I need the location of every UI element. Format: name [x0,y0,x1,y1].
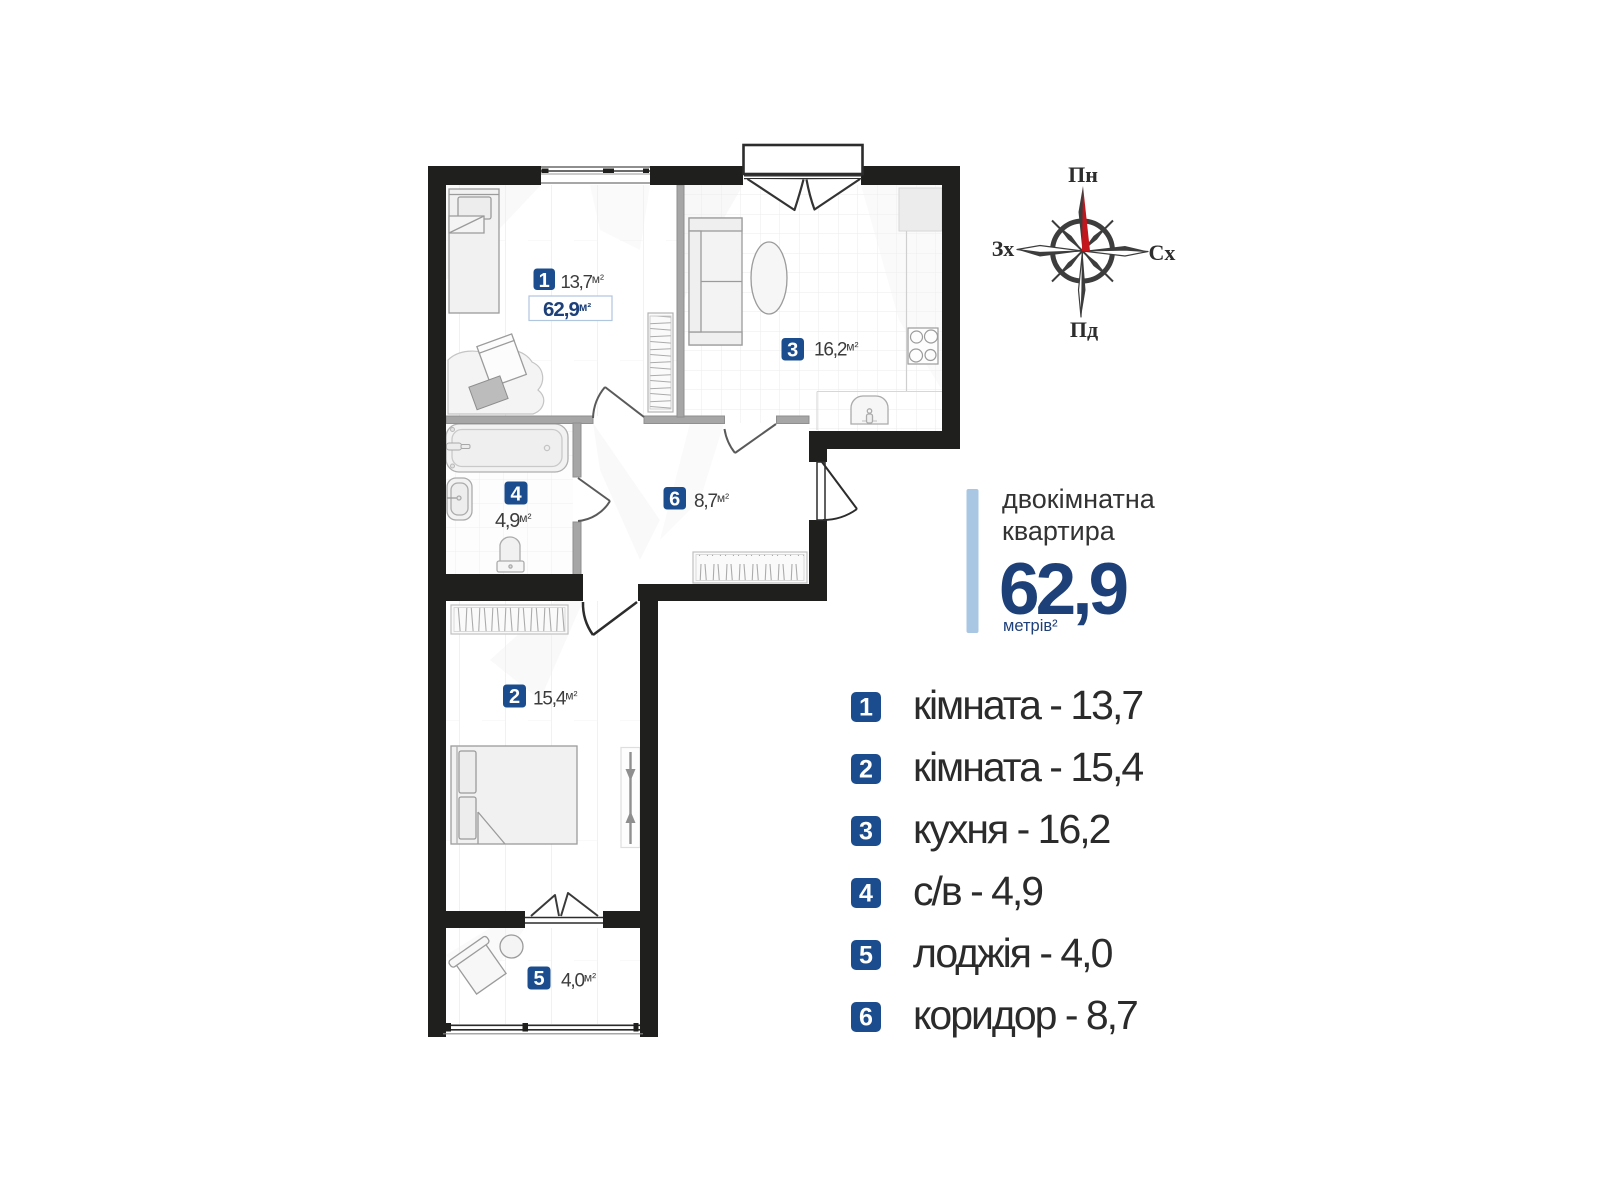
svg-text:5: 5 [533,968,544,990]
svg-text:6: 6 [859,1004,873,1032]
svg-text:4: 4 [510,484,522,506]
svg-text:Сх: Сх [1149,240,1176,265]
svg-text:Пд: Пд [1070,317,1098,342]
svg-text:3: 3 [787,340,798,362]
svg-text:1: 1 [859,694,873,722]
svg-text:кухня - 16,2: кухня - 16,2 [913,806,1110,852]
svg-text:6: 6 [669,489,680,511]
svg-text:коридор - 8,7: коридор - 8,7 [913,992,1137,1038]
svg-text:5: 5 [859,942,873,970]
svg-text:Зх: Зх [992,236,1015,261]
svg-text:3: 3 [859,818,873,846]
svg-text:квартира: квартира [1002,516,1116,546]
svg-text:2: 2 [859,756,873,784]
svg-text:метрів²: метрів² [1003,617,1058,635]
svg-text:4: 4 [859,880,873,908]
svg-text:лоджія - 4,0: лоджія - 4,0 [913,930,1113,976]
svg-text:кімната - 13,7: кімната - 13,7 [913,682,1142,728]
svg-text:двокімнатна: двокімнатна [1002,484,1156,514]
svg-text:1: 1 [539,270,550,292]
svg-text:кімната - 15,4: кімната - 15,4 [913,744,1143,790]
svg-text:Пн: Пн [1068,162,1098,187]
svg-text:2: 2 [509,686,520,708]
svg-text:с/в - 4,9: с/в - 4,9 [913,868,1042,914]
